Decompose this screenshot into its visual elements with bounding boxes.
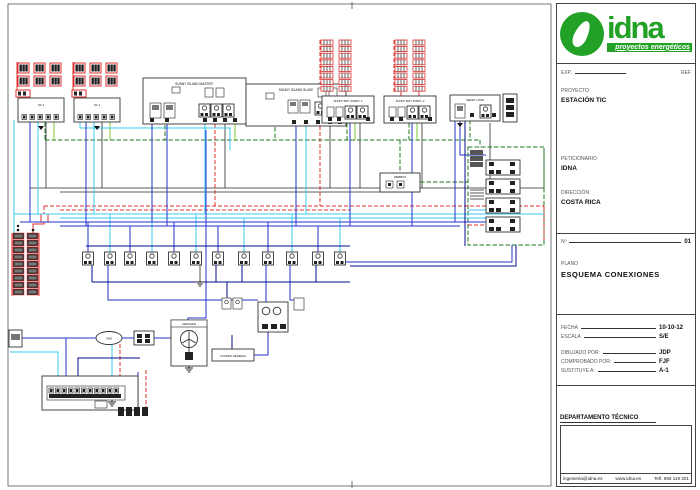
sustituye-value: A-1 bbox=[659, 368, 691, 374]
plano-label: PLANO bbox=[561, 261, 691, 267]
logo-box: idna proyectos energéticos bbox=[557, 4, 695, 64]
si-slave-label: SUNNY ISLAND SLAVE bbox=[279, 88, 313, 92]
direccion-label: DIRECCIÓN bbox=[561, 190, 691, 196]
battery-bank bbox=[13, 233, 38, 295]
smart-load-box: SMART LOAD bbox=[450, 95, 500, 127]
webbox-label: WEBBOX bbox=[394, 175, 406, 179]
cuadro-general-label: CUADRO GENERAL bbox=[220, 354, 247, 358]
wires-ground-green bbox=[54, 122, 417, 140]
exp-row: EXP. REF bbox=[561, 70, 691, 76]
comprobado-value: FJF bbox=[659, 359, 691, 365]
peticionario-value: IDNA bbox=[561, 165, 691, 172]
sb1-label: SUNNY BOY 4000TL 1 bbox=[334, 99, 363, 103]
meter-box bbox=[258, 302, 288, 332]
dibujado-label: DIBUJADO POR: bbox=[561, 350, 600, 356]
sb2-label: SUNNY BOY 4000TL 2 bbox=[396, 99, 425, 103]
logo-text: idna bbox=[607, 15, 692, 41]
ref-label: REF bbox=[681, 70, 691, 76]
drawing-sheet: NC 2 NC 1 SUNNY ISLAND MASTER SUNNY ISLA… bbox=[0, 0, 700, 490]
dc-disconnect-left bbox=[9, 330, 22, 347]
charge-controller-2-box: NC 2 bbox=[18, 98, 64, 130]
departamento-label: DEPARTAMENTO TÉCNICO bbox=[560, 415, 656, 423]
cuadro-general-box: CUADRO GENERAL bbox=[212, 349, 254, 361]
breaker-bank-1 bbox=[16, 63, 61, 97]
plano-value: ESQUEMA CONEXIONES bbox=[561, 270, 691, 279]
num-line bbox=[569, 241, 681, 243]
footer-email: ingenieria@idna.es bbox=[563, 476, 602, 481]
title-block: idna proyectos energéticos EXP. REF PROY… bbox=[556, 3, 696, 487]
escala-line bbox=[584, 336, 656, 338]
proyecto-value: ESTACIÓN TIC bbox=[561, 97, 691, 104]
io-module-cluster bbox=[470, 150, 520, 232]
pv-string-array-2 bbox=[395, 40, 425, 91]
si-master-label: SUNNY ISLAND MASTER bbox=[175, 82, 213, 86]
comprobado-line bbox=[614, 361, 656, 363]
peticionario-section: PETICIONARIO IDNA bbox=[561, 156, 691, 172]
direccion-section: DIRECCIÓN COSTA RICA bbox=[561, 190, 691, 206]
footer-web: www.idna.es bbox=[615, 476, 641, 481]
sustituye-label: SUSTITUYE A: bbox=[561, 368, 595, 374]
comprobado-label: COMPROBADO POR: bbox=[561, 359, 611, 365]
proyecto-section: PROYECTO ESTACIÓN TIC bbox=[561, 88, 691, 104]
arrow-down-icon bbox=[457, 123, 463, 127]
footer-phone: Telf. 966 119 201 bbox=[654, 476, 689, 481]
sunny-boy-2-box: SUNNY BOY 4000TL 2 bbox=[384, 96, 436, 123]
wind-tag-ellipse: VND bbox=[96, 332, 122, 345]
smart-load-aux-device bbox=[503, 94, 517, 122]
arrow-down-icon bbox=[38, 126, 44, 130]
fecha-section: FECHA 10-10-12 ESCALA S/E DIBUJADO POR: … bbox=[557, 320, 695, 386]
dibujado-line bbox=[603, 352, 656, 354]
idna-leaf-logo-icon bbox=[560, 12, 604, 56]
logo-tagline: proyectos energéticos bbox=[607, 43, 692, 52]
webbox-device: WEBBOX bbox=[380, 173, 420, 192]
fecha-line bbox=[581, 327, 656, 329]
plano-section: Nº 01 PLANO ESQUEMA CONEXIONES bbox=[557, 233, 695, 315]
sunny-boy-1-box: SUNNY BOY 4000TL 1 bbox=[322, 96, 374, 123]
escala-label: ESCALA bbox=[561, 334, 581, 340]
wind-tag-label: VND bbox=[106, 337, 112, 341]
exp-label: EXP. bbox=[561, 70, 572, 76]
smart-load-label: SMART LOAD bbox=[466, 98, 484, 102]
escala-value: S/E bbox=[659, 334, 691, 340]
terminal-junction-box bbox=[42, 376, 138, 410]
aerogen-label: AEROGEN bbox=[182, 322, 196, 326]
wind-controller bbox=[134, 331, 154, 345]
pv-string-array-1 bbox=[321, 40, 351, 91]
nc2-label: NC 2 bbox=[38, 103, 45, 107]
relay-row bbox=[83, 252, 346, 286]
wind-turbine-box: AEROGEN bbox=[171, 320, 207, 372]
proyecto-label: PROYECTO bbox=[561, 88, 691, 94]
nc1-label: NC 1 bbox=[94, 103, 101, 107]
fecha-value: 10-10-12 bbox=[659, 325, 691, 331]
charge-controller-1-box: NC 1 bbox=[74, 98, 120, 130]
contact-footer: ingenieria@idna.es www.idna.es Telf. 966… bbox=[561, 473, 691, 483]
exp-line bbox=[575, 72, 627, 74]
direccion-value: COSTA RICA bbox=[561, 199, 691, 206]
sustituye-line bbox=[598, 370, 656, 372]
num-value: 01 bbox=[684, 239, 691, 245]
departamento-box: ingenieria@idna.es www.idna.es Telf. 966… bbox=[560, 425, 692, 484]
dibujado-value: JDP bbox=[659, 350, 691, 356]
peticionario-label: PETICIONARIO bbox=[561, 156, 691, 162]
fecha-label: FECHA bbox=[561, 325, 578, 331]
num-label: Nº bbox=[561, 239, 566, 245]
sunny-island-master-box: SUNNY ISLAND MASTER bbox=[143, 78, 246, 124]
breaker-bank-2 bbox=[72, 63, 117, 97]
